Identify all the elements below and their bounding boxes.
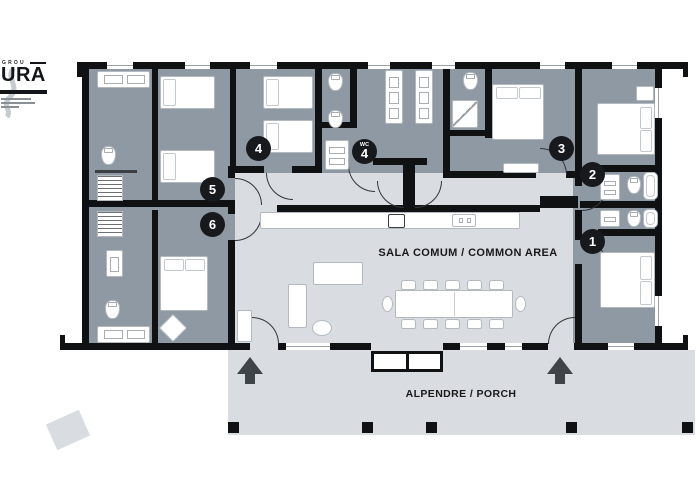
shower [452,100,478,128]
dining-table [395,290,513,318]
entrance-steps [371,351,443,372]
porch-column [426,422,437,433]
toilet [627,176,641,194]
dining-chair [382,296,393,312]
wall [228,240,235,343]
door-opening [250,343,278,350]
dining-chair [445,280,460,290]
toilet [101,146,116,165]
wall [373,158,427,165]
wall [683,335,688,343]
toilet [328,110,343,128]
porch-column [682,422,693,433]
double-bed [492,84,544,140]
entrance-arrow-icon [547,357,573,374]
double-bed [597,103,655,155]
porch-column [566,422,577,433]
bathtub [643,172,658,200]
window [608,343,634,350]
wall [230,69,236,173]
wall [575,264,582,343]
wall [443,62,450,173]
window [540,62,565,69]
dining-chair [401,319,416,329]
window [286,343,330,350]
path-fragment [46,410,90,450]
wall [598,229,662,236]
wall [60,335,65,343]
shelf [95,170,137,173]
toilet [627,210,641,227]
window [432,62,455,69]
window [505,343,522,350]
wall [575,62,582,174]
wall [315,62,322,173]
closet-hatch [97,211,123,237]
entrance-arrow-icon [237,357,263,374]
porch-column [228,422,239,433]
wall [152,210,158,343]
wall [292,166,322,173]
sink-counter [97,71,150,88]
closet-hatch [97,175,123,201]
room-badge-6: 6 [200,212,225,237]
window [250,62,277,69]
dining-chair [467,280,482,290]
entrance-arrow-icon [245,374,255,384]
toilet [463,72,478,90]
dining-chair [515,296,526,312]
wall [598,165,662,172]
window [185,62,210,69]
door-opening [548,343,574,350]
wall [485,62,492,138]
room-badge-3: 3 [549,136,574,161]
double-bed [600,252,655,308]
porch-label: ALPENDRE / PORCH [406,388,517,400]
window [107,62,133,69]
porch-column [362,422,373,433]
entrance-arrow-icon [555,374,565,384]
sink-counter [97,326,150,343]
single-bed [160,76,215,109]
kitchenette-counter [385,70,403,124]
wall [443,130,492,136]
sink-counter [600,210,620,227]
wall [82,62,89,350]
window [460,343,487,350]
dining-chair [489,280,504,290]
toilet [328,73,343,91]
dining-chair [467,319,482,329]
wardrobe [636,86,654,101]
wall [540,196,578,208]
room-badge-1: 1 [580,229,605,254]
stove [388,214,405,228]
window [612,62,637,69]
kitchenette-counter [415,70,433,124]
sink-counter [106,250,123,277]
door-opening [371,343,443,350]
floor-plan-page: GROU URA SALA COMUM / COMMON AREA ALPEND… [0,0,700,500]
wall [403,158,415,213]
common-area-label: SALA COMUM / COMMON AREA [378,247,557,259]
bathtub [643,209,658,228]
wall [77,69,82,77]
room-badge-2: 2 [580,162,605,187]
room-badge-wc-4: WC4 [352,139,377,164]
dining-chair [489,319,504,329]
floor-plan: SALA COMUM / COMMON AREA ALPENDRE / PORC… [0,0,700,500]
room-badge-5: 5 [200,177,225,202]
single-bed [263,76,313,109]
wall [228,204,235,214]
bench [503,163,539,173]
window [368,62,390,69]
sink-counter [325,140,349,170]
wall [350,69,357,127]
dining-chair [401,280,416,290]
dining-chair [445,319,460,329]
kitchen-sink [452,214,476,227]
wall [152,69,158,203]
double-bed [160,256,208,311]
wall [228,171,235,178]
dining-chair [423,280,438,290]
window [655,88,662,118]
armchair [288,284,307,328]
sofa [313,262,363,285]
room-badge-4: 4 [246,136,271,161]
dining-chair [423,319,438,329]
toilet [105,300,120,319]
side-table [312,320,332,336]
window [655,296,662,326]
console [237,310,252,342]
wall [683,69,688,77]
